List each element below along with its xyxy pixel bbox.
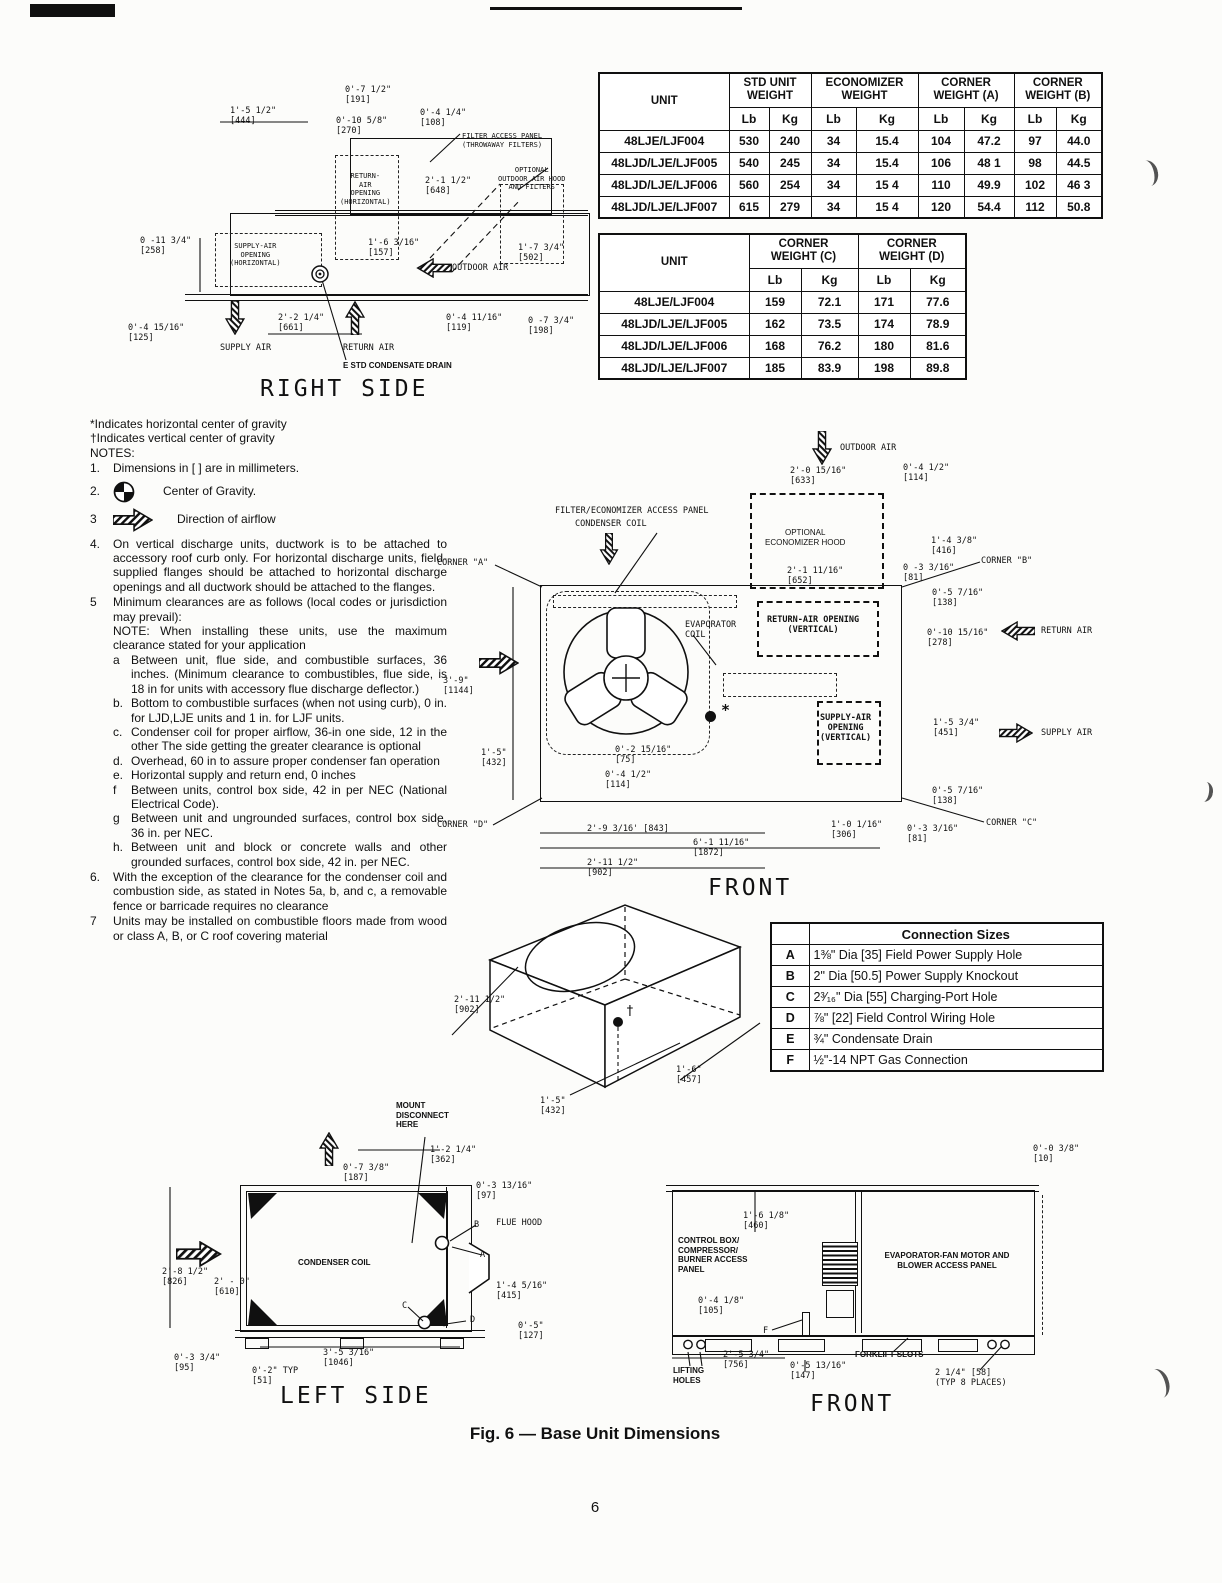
cell: ⅞" [22] Field Control Wiring Hole	[809, 1008, 1103, 1029]
lifting-hole	[682, 1339, 708, 1350]
cell: 73.5	[801, 313, 858, 335]
cell: 162	[749, 313, 801, 335]
cell: 34	[811, 152, 856, 174]
dim-label: 0 -3 3/16" [81]	[903, 563, 954, 583]
base-foot	[245, 1338, 269, 1349]
dim-label: 1'-6" [457]	[676, 1065, 702, 1085]
note-sub-item: g Between unit and ungrounded surfaces, …	[113, 811, 447, 840]
page-number: 6	[0, 1499, 1190, 1516]
cell: 106	[918, 152, 964, 174]
callout-lifting-holes: LIFTING HOLES	[673, 1366, 704, 1385]
callout-return-air-opening: RETURN- AIR OPENING (HORIZONTAL)	[340, 172, 391, 206]
cell: 171	[858, 291, 910, 313]
right-side-diagram: 0'-7 1/2" [191] 1'-5 1/2" [444] 0'-10 5/…	[100, 72, 592, 407]
callout-supply-air: SUPPLY AIR	[1041, 728, 1092, 738]
table-row: F½"-14 NPT Gas Connection	[771, 1050, 1103, 1072]
cell: 168	[749, 335, 801, 357]
connection-point-circle	[434, 1235, 450, 1251]
table-row: 48LJD/LJE/LJF005 162 73.5 174 78.9	[599, 313, 966, 335]
panel-corner-wedge	[248, 1193, 277, 1222]
note-text: Direction of airflow	[177, 512, 276, 526]
dim-label: 2'-11 1/2" [902]	[587, 858, 638, 878]
dim-label: 0'-4 15/16" [125]	[128, 323, 184, 343]
scan-artifact	[1139, 159, 1160, 188]
dim-label: 1'-5" [432]	[481, 748, 507, 768]
dim-label: 0'-4 1/2" [114]	[605, 770, 651, 790]
cell: 72.1	[801, 291, 858, 313]
connection-sizes-table: Connection Sizes A1⅜" Dia [35] Field Pow…	[770, 922, 1104, 1072]
connection-point-dot	[440, 1319, 448, 1327]
callout-return-air: RETURN AIR	[343, 343, 394, 353]
callout-filter-economizer-access: FILTER/ECONOMIZER ACCESS PANEL	[555, 506, 709, 516]
dim-label: 2'-0 15/16" [633]	[790, 466, 846, 486]
header-cell: UNIT	[599, 234, 749, 291]
dim-label: 1'-6 3/16" [157]	[368, 238, 419, 258]
header-cell: Connection Sizes	[809, 923, 1103, 945]
condenser-coil-arrow-icon	[599, 533, 619, 565]
callout-corner-b: CORNER "B"	[981, 556, 1032, 566]
dim-label: 0'-3 3/4" [95]	[174, 1353, 220, 1373]
callout-mount-disconnect: MOUNT DISCONNECT HERE	[396, 1101, 449, 1130]
key-cell: D	[771, 1008, 809, 1029]
cell: 81.6	[910, 335, 966, 357]
note-sub-item: b. Bottom to combustible surfaces (when …	[113, 696, 447, 725]
cell: 102	[1014, 174, 1056, 196]
unit-base-rail	[185, 294, 588, 301]
connection-point-a: A	[480, 1250, 485, 1260]
cell: 98	[1014, 152, 1056, 174]
dim-label: 0 -7 3/4" [198]	[528, 316, 574, 336]
dim-label: 0'-7 3/8" [187]	[343, 1163, 389, 1183]
header-cell: STD UNIT WEIGHT	[729, 73, 811, 107]
unit-cell: 48LJD/LJE/LJF005	[599, 313, 749, 335]
cell: 34	[811, 174, 856, 196]
header-cell: ECONOMIZER WEIGHT	[811, 73, 918, 107]
cell: 34	[811, 196, 856, 218]
connection-point-c: C	[402, 1301, 407, 1311]
cell: 15 4	[856, 196, 918, 218]
connection-point-circle	[417, 1315, 432, 1330]
cell: 15 4	[856, 174, 918, 196]
dim-label: 0 -11 3/4" [258]	[140, 236, 191, 256]
cg-footnote-horizontal: *Indicates horizontal center of gravity	[90, 417, 447, 431]
dim-label: 0'-10 5/8" [270]	[336, 116, 387, 136]
header-cell: CORNER WEIGHT (B)	[1014, 73, 1102, 107]
cell: ½"-14 NPT Gas Connection	[809, 1050, 1103, 1072]
dim-label: 2'-11 1/2" [902]	[454, 995, 505, 1015]
cell: 112	[1014, 196, 1056, 218]
note-text: Dimensions in [ ] are in millimeters.	[113, 461, 447, 475]
callout-corner-a: CORNER "A"	[437, 558, 488, 568]
dim-label: 0'-7 1/2" [191]	[345, 85, 391, 105]
dim-label: 1'-5 1/2" [444]	[230, 106, 276, 126]
dim-label: 2'-5 3/4" [756]	[723, 1350, 769, 1370]
dim-label: 1'-5 3/4" [451]	[933, 718, 979, 738]
corner-weights-table: UNIT CORNER WEIGHT (C) CORNER WEIGHT (D)…	[598, 233, 967, 380]
front-top-diagram: OUTDOOR AIR 2'-0 15/16" [633] 0'-4 1/2" …	[435, 435, 1115, 905]
outdoor-air-arrow-icon	[416, 258, 452, 278]
header-cell: CORNER WEIGHT (D)	[858, 234, 966, 268]
unit-cell: 48LJD/LJE/LJF007	[599, 357, 749, 379]
cell: 245	[769, 152, 811, 174]
cell: 34	[811, 130, 856, 152]
cell: 254	[769, 174, 811, 196]
evaporator-coil-outline	[723, 673, 837, 697]
cell: 110	[918, 174, 964, 196]
note-marker: 3	[90, 512, 113, 526]
note-marker: c.	[113, 725, 131, 754]
dim-label: 2'-1 1/2" [648]	[425, 176, 471, 196]
dim-label: 3'-5 3/16" [1046]	[323, 1348, 374, 1368]
header-cell: Kg	[769, 107, 811, 130]
callout-evaporator-fan-panel: EVAPORATOR-FAN MOTOR AND BLOWER ACCESS P…	[882, 1251, 1012, 1270]
unit-cell: 48LJD/LJE/LJF006	[599, 335, 749, 357]
note-text: Horizontal supply and return end, 0 inch…	[131, 768, 447, 782]
airflow-arrow-icon	[479, 651, 519, 675]
cell: 50.8	[1056, 196, 1102, 218]
header-cell: CORNER WEIGHT (A)	[918, 73, 1014, 107]
dim-label: 2'-2 1/4" [661]	[278, 313, 324, 333]
front-bottom-title: FRONT	[810, 1391, 894, 1417]
dim-label: 0'-4 1/8" [105]	[698, 1296, 744, 1316]
dim-label: 0'-4 11/16" [119]	[446, 313, 502, 333]
cell: 185	[749, 357, 801, 379]
header-cell: Kg	[801, 268, 858, 291]
dim-label: 0'-5 7/16" [138]	[932, 786, 983, 806]
dim-label: 1'-4 3/8" [416]	[931, 536, 977, 556]
cell: 2" Dia [50.5] Power Supply Knockout	[809, 966, 1103, 987]
dim-label: 0'-3 3/16" [81]	[907, 824, 958, 844]
note-text: With the exception of the clearance for …	[113, 870, 447, 913]
isometric-diagram: 2'-11 1/2" [902] 1'-5" [432] 1'-6" [457]…	[430, 895, 770, 1125]
note-marker: h.	[113, 840, 131, 869]
panel-divider	[446, 1187, 447, 1328]
note-sub-item: d. Overhead, 60 in to assure proper cond…	[113, 754, 447, 768]
table-row: 48LJD/LJE/LJF007 185 83.9 198 89.8	[599, 357, 966, 379]
callout-condenser-coil: CONDENSER COIL	[575, 519, 647, 529]
callout-outdoor-air: OUTDOOR AIR	[452, 263, 508, 273]
header-cell: Kg	[910, 268, 966, 291]
cell: 44.0	[1056, 130, 1102, 152]
note-text: Overhead, 60 in to assure proper condens…	[131, 754, 447, 768]
callout-supply-air: SUPPLY AIR	[220, 343, 271, 353]
front-bottom-diagram: 0'-0 3/8" [10] 1'-6 1/8" [460] CONTROL B…	[650, 1140, 1080, 1425]
cell: 560	[729, 174, 769, 196]
note-text: Units may be installed on combustible fl…	[113, 914, 447, 943]
callout-supply-air-opening: SUPPLY-AIR OPENING (VERTICAL)	[820, 713, 871, 743]
airflow-right-arrow-icon	[176, 1241, 222, 1267]
note-marker: d.	[113, 754, 131, 768]
airflow-up-arrow-icon	[319, 1132, 339, 1166]
dim-label: 2'-9 3/16' [843]	[587, 824, 669, 834]
callout-corner-c: CORNER "C"	[986, 818, 1037, 828]
table-row: D⅞" [22] Field Control Wiring Hole	[771, 1008, 1103, 1029]
unit-base-rail	[235, 1330, 485, 1338]
note-marker: g	[113, 811, 131, 840]
cell: 77.6	[910, 291, 966, 313]
return-air-arrow-icon	[1001, 621, 1035, 641]
dim-label: 2'-1 11/16" [652]	[787, 566, 843, 586]
note-text: Between units, control box side, 42 in p…	[131, 783, 447, 812]
heat-exchanger-grille-icon	[822, 1242, 858, 1286]
cell: 530	[729, 130, 769, 152]
header-cell: Lb	[858, 268, 910, 291]
callout-outdoor-air: OUTDOOR AIR	[840, 443, 896, 453]
dim-label: 1'-4 5/16" [415]	[496, 1281, 547, 1301]
header-cell	[771, 923, 809, 945]
cell: ¾" Condensate Drain	[809, 1029, 1103, 1050]
header-cell: Lb	[811, 107, 856, 130]
condenser-fan-icon	[547, 592, 705, 750]
unit-cell: 48LJE/LJF004	[599, 130, 729, 152]
figure-caption: Fig. 6 — Base Unit Dimensions	[0, 1424, 1190, 1444]
note-sub-item: e. Horizontal supply and return end, 0 i…	[113, 768, 447, 782]
callout-evaporator-coil: EVAPORATOR COIL	[685, 620, 736, 640]
cell: 240	[769, 130, 811, 152]
right-side-title: RIGHT SIDE	[260, 376, 428, 402]
header-cell: Kg	[1056, 107, 1102, 130]
header-cell: Kg	[856, 107, 918, 130]
cell: 83.9	[801, 357, 858, 379]
header-cell: Kg	[964, 107, 1014, 130]
horizontal-cg-asterisk: *	[721, 705, 730, 715]
cell: 120	[918, 196, 964, 218]
note-text: Between unit and ungrounded surfaces, co…	[131, 811, 447, 840]
callout-condensate-drain: E STD CONDENSATE DRAIN	[343, 361, 452, 371]
cell: 180	[858, 335, 910, 357]
note-text: Center of Gravity.	[163, 484, 256, 498]
dim-label: 0'-5" [127]	[518, 1321, 544, 1341]
note-item: 7 Units may be installed on combustible …	[90, 914, 447, 943]
table-row: 48LJE/LJF004 530 240 34 15.4 104 47.2 97…	[599, 130, 1102, 152]
cell: 54.4	[964, 196, 1014, 218]
offset-reference-line	[1042, 1195, 1043, 1335]
note-text: Bottom to combustible surfaces (when not…	[131, 696, 447, 725]
key-cell: A	[771, 945, 809, 966]
callout-flue-hood: FLUE HOOD	[496, 1218, 542, 1228]
dim-label: 1'-7 3/4" [502]	[518, 243, 564, 263]
dim-label: 0'-2 15/16" [75]	[615, 745, 671, 765]
note-sub-item: a Between unit, flue side, and combustib…	[113, 653, 447, 696]
panel-corner-wedge	[418, 1193, 447, 1222]
supply-air-arrow-icon	[225, 301, 245, 335]
cell: 279	[769, 196, 811, 218]
callout-outdoor-air-hood: OPTIONAL OUTDOOR AIR HOOD AND FILTERS	[498, 166, 565, 192]
unit-weights-table: UNIT STD UNIT WEIGHT ECONOMIZER WEIGHT C…	[598, 72, 1103, 219]
dim-label: 0'-5 13/16" [147]	[790, 1361, 846, 1381]
callout-economizer-hood: OPTIONAL ECONOMIZER HOOD	[765, 528, 845, 548]
note-marker: f	[113, 783, 131, 812]
key-cell: B	[771, 966, 809, 987]
forklift-slot	[778, 1339, 825, 1352]
header-cell: Lb	[1014, 107, 1056, 130]
dim-label: 1'-2 1/4" [362]	[430, 1145, 476, 1165]
document-page: { "page": { "number": "6", "caption": "F…	[0, 0, 1222, 1583]
note-item: 2. Center of Gravity.	[90, 481, 447, 503]
dim-label: 0'-4 1/4" [108]	[420, 108, 466, 128]
lifting-hole	[986, 1339, 1012, 1350]
callout-return-air: RETURN AIR	[1041, 626, 1092, 636]
note-marker: 5	[90, 595, 113, 653]
note-text: Between unit and block or concrete walls…	[131, 840, 447, 869]
connection-point-b: B	[474, 1220, 479, 1230]
callout-control-box-panel: CONTROL BOX/ COMPRESSOR/ BURNER ACCESS P…	[678, 1236, 748, 1274]
note-text: Between unit, flue side, and combustible…	[131, 653, 447, 696]
outdoor-air-arrow-icon	[811, 431, 833, 465]
dim-label: 2'-8 1/2" [826]	[162, 1267, 208, 1287]
header-cell: Lb	[918, 107, 964, 130]
scan-artifact	[1199, 781, 1215, 803]
base-foot	[440, 1338, 464, 1349]
gas-connection-pipe	[802, 1312, 810, 1336]
header-cell: CORNER WEIGHT (C)	[749, 234, 858, 268]
center-of-gravity-marker	[705, 711, 716, 722]
table-row: 48LJE/LJF004 159 72.1 171 77.6	[599, 291, 966, 313]
note-marker: a	[113, 653, 131, 696]
header-cell: Lb	[729, 107, 769, 130]
notes-section: *Indicates horizontal center of gravity …	[90, 417, 447, 943]
unit-cell: 48LJD/LJE/LJF007	[599, 196, 729, 218]
header-cell: UNIT	[599, 73, 729, 130]
dim-label: 0'-3 13/16" [97]	[476, 1181, 532, 1201]
callout-forklift-slots: FORKLIFT SLOTS	[855, 1350, 923, 1360]
note-marker: 1.	[90, 461, 113, 475]
table-row: 48LJD/LJE/LJF006 168 76.2 180 81.6	[599, 335, 966, 357]
table-row: 48LJD/LJE/LJF006 560 254 34 15 4 110 49.…	[599, 174, 1102, 196]
left-side-title: LEFT SIDE	[280, 1383, 432, 1409]
cell: 15.4	[856, 152, 918, 174]
cell: 49.9	[964, 174, 1014, 196]
cell: 46 3	[1056, 174, 1102, 196]
dim-label: 3'-9" [1144]	[443, 676, 474, 696]
cell: 78.9	[910, 313, 966, 335]
dim-label: 0'-10 15/16" [278]	[927, 628, 988, 648]
dim-label: 1'-0 1/16" [306]	[831, 820, 882, 840]
cell: 97	[1014, 130, 1056, 152]
table-row: B2" Dia [50.5] Power Supply Knockout	[771, 966, 1103, 987]
header-cell: Lb	[749, 268, 801, 291]
note-text: Minimum clearances are as follows (local…	[113, 595, 447, 653]
condensate-drain-icon	[310, 264, 330, 284]
callout-corner-d: CORNER "D"	[437, 820, 488, 830]
panel-corner-wedge	[248, 1296, 277, 1325]
note-text: Condenser coil for proper airflow, 36-in…	[131, 725, 447, 754]
note-marker: b.	[113, 696, 131, 725]
dim-label: 6'-1 11/16" [1872]	[693, 838, 749, 858]
note-sub-item: h. Between unit and block or concrete wa…	[113, 840, 447, 869]
key-cell: C	[771, 987, 809, 1008]
table-row: 48LJD/LJE/LJF007 615 279 34 15 4 120 54.…	[599, 196, 1102, 218]
corner-mark	[30, 4, 115, 17]
scan-artifact	[1148, 1366, 1173, 1400]
dim-label: 2 1/4" [58] (TYP 8 PLACES)	[935, 1368, 1007, 1388]
callout-filter-access-panel: FILTER ACCESS PANEL (THROWAWAY FILTERS)	[462, 132, 542, 149]
cell: 44.5	[1056, 152, 1102, 174]
table-row: A1⅜" Dia [35] Field Power Supply Hole	[771, 945, 1103, 966]
return-air-arrow-icon	[345, 301, 365, 335]
cell: 1⅜" Dia [35] Field Power Supply Hole	[809, 945, 1103, 966]
unit-cell: 48LJD/LJE/LJF005	[599, 152, 729, 174]
table-row: 48LJD/LJE/LJF005 540 245 34 15.4 106 48 …	[599, 152, 1102, 174]
connection-point-d: D	[470, 1315, 475, 1325]
dim-label: 1'-6 1/8" [460]	[743, 1211, 789, 1231]
header-rule	[490, 7, 742, 10]
unit-cell: 48LJE/LJF004	[599, 291, 749, 313]
callout-condenser-coil: CONDENSER COIL	[298, 1258, 370, 1268]
callout-return-air-opening: RETURN-AIR OPENING (VERTICAL)	[767, 615, 859, 635]
cell: 76.2	[801, 335, 858, 357]
note-sub-item: f Between units, control box side, 42 in…	[113, 783, 447, 812]
center-of-gravity-icon	[113, 481, 135, 503]
cell: 540	[729, 152, 769, 174]
dim-label: 0'-0 3/8" [10]	[1033, 1144, 1079, 1164]
burner-box-icon	[826, 1290, 854, 1318]
note-item: 4. On vertical discharge units, ductwork…	[90, 537, 447, 595]
note-sub-item: c. Condenser coil for proper airflow, 36…	[113, 725, 447, 754]
cell: 198	[858, 357, 910, 379]
left-side-diagram: MOUNT DISCONNECT HERE 1'-2 1/4" [362] 0'…	[140, 1095, 570, 1415]
note-item: 5 Minimum clearances are as follows (loc…	[90, 595, 447, 653]
note-marker: 4.	[90, 537, 113, 595]
vertical-cg-dagger: †	[626, 1007, 634, 1017]
table-row: C2³⁄₁₆" Dia [55] Charging-Port Hole	[771, 987, 1103, 1008]
cell: 48 1	[964, 152, 1014, 174]
dim-label: 0'-4 1/2" [114]	[903, 463, 949, 483]
supply-air-arrow-icon	[999, 723, 1033, 743]
airflow-arrow-icon	[113, 508, 153, 532]
cell: 15.4	[856, 130, 918, 152]
dim-label: 2' - 0" [610]	[214, 1277, 250, 1297]
key-cell: F	[771, 1050, 809, 1072]
note-marker: e.	[113, 768, 131, 782]
cg-footnote-vertical: †Indicates vertical center of gravity	[90, 431, 447, 445]
note-item: 3 Direction of airflow	[90, 508, 447, 532]
connection-point-f: F	[763, 1326, 768, 1336]
note-marker: 6.	[90, 870, 113, 913]
cell: 89.8	[910, 357, 966, 379]
cell: 174	[858, 313, 910, 335]
forklift-slot	[938, 1339, 978, 1352]
cell: 159	[749, 291, 801, 313]
notes-heading: NOTES:	[90, 446, 447, 460]
note-marker: 7	[90, 914, 113, 943]
note-text: On vertical discharge units, ductwork is…	[113, 537, 447, 595]
callout-supply-air-opening: SUPPLY-AIR OPENING (HORIZONTAL)	[230, 242, 281, 268]
cell: 47.2	[964, 130, 1014, 152]
note-item: 6. With the exception of the clearance f…	[90, 870, 447, 913]
table-row: E¾" Condensate Drain	[771, 1029, 1103, 1050]
unit-cell: 48LJD/LJE/LJF006	[599, 174, 729, 196]
note-marker: 2.	[90, 484, 113, 498]
cell: 615	[729, 196, 769, 218]
note-item: 1. Dimensions in [ ] are in millimeters.	[90, 461, 447, 475]
dim-label: 0'-5 7/16" [138]	[932, 588, 983, 608]
key-cell: E	[771, 1029, 809, 1050]
cell: 104	[918, 130, 964, 152]
cell: 2³⁄₁₆" Dia [55] Charging-Port Hole	[809, 987, 1103, 1008]
